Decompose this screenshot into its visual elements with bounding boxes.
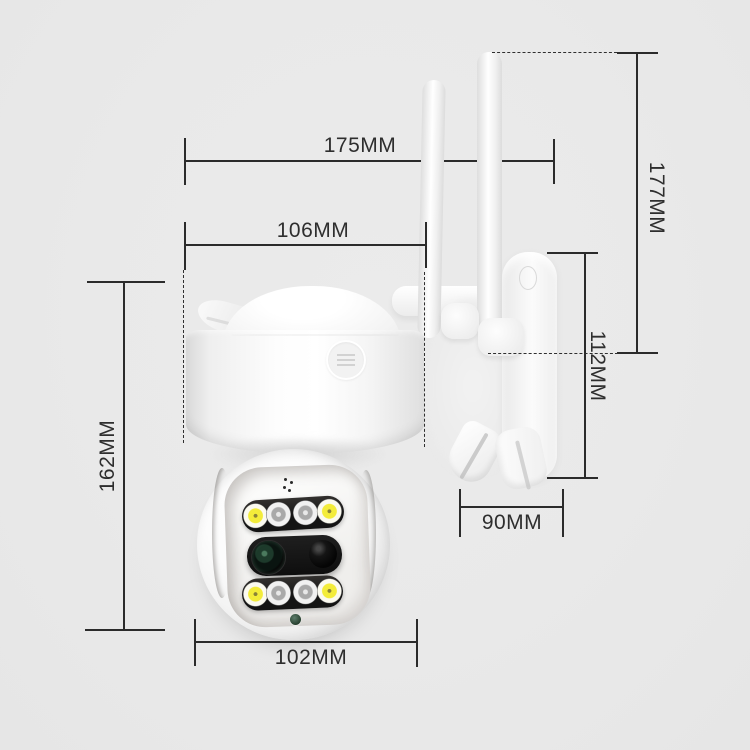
dim-bracket-depth-cap-left [459, 489, 461, 537]
dim-body-height-line [123, 282, 125, 630]
dim-body-width-label: 106MM [263, 218, 363, 244]
product-dimension-diagram: 175MM [0, 0, 750, 750]
dim-body-width-cap-left [184, 222, 186, 270]
dimension-annotations: 106MM 162MM 177MM 112MM 90MM 102MM [0, 0, 750, 750]
dim-head-width-label: 102MM [261, 645, 361, 671]
extension-dashed-line-right [424, 272, 425, 447]
dim-overall-height-line [636, 53, 638, 353]
dim-body-height-cap-bottom [85, 629, 165, 631]
dim-head-width-cap-right [416, 619, 418, 667]
dim-bracket-depth-label: 90MM [462, 510, 562, 536]
dim-head-width-line [195, 641, 417, 643]
dim-bracket-height-label: 112MM [584, 316, 610, 416]
dim-body-height-label: 162MM [95, 406, 121, 506]
dim-body-width-cap-right [425, 222, 427, 268]
dim-overall-height-label: 177MM [643, 148, 669, 248]
dim-bracket-height-cap-top [547, 252, 598, 254]
dim-bracket-depth-cap-right [562, 489, 564, 537]
dim-body-height-cap-top [87, 281, 165, 283]
dim-overall-height-cap-bottom [617, 352, 658, 354]
dim-bracket-height-cap-bottom [547, 477, 598, 479]
dim-bracket-depth-line [460, 506, 564, 508]
antenna-top-dashed-line [492, 52, 617, 53]
dim-overall-height-cap-top [617, 52, 658, 54]
dim-head-width-cap-left [194, 619, 196, 666]
dim-body-width-line [185, 244, 426, 246]
extension-dashed-line-left [183, 270, 184, 443]
